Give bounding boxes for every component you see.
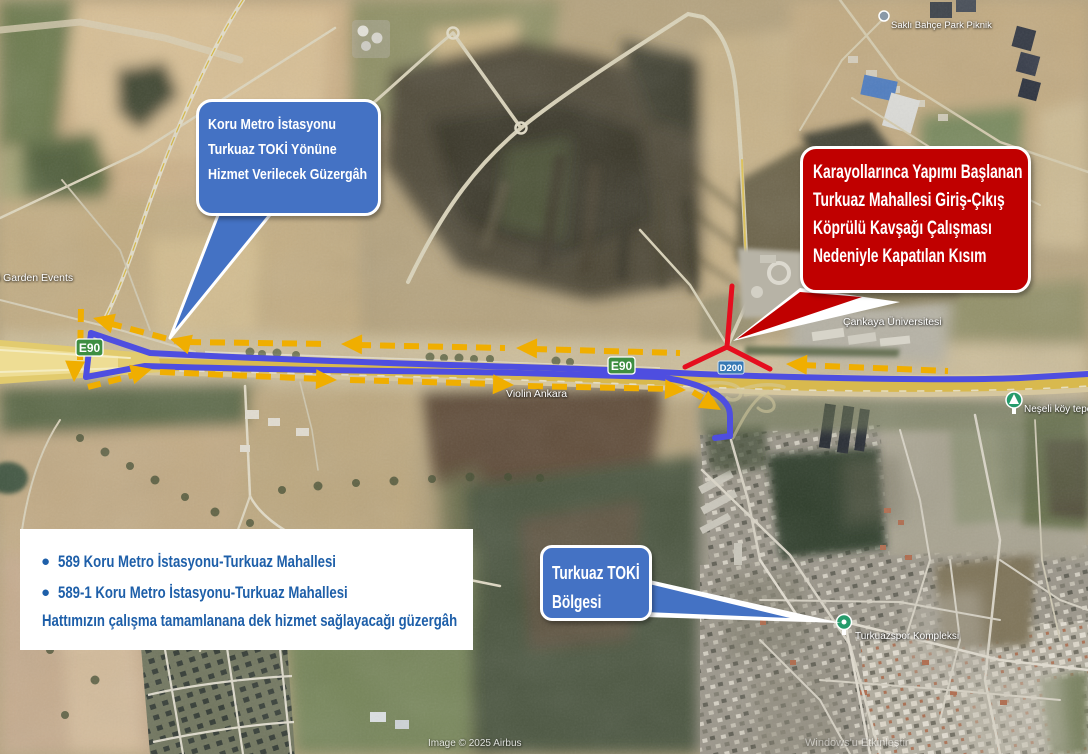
svg-text:E90: E90	[79, 341, 101, 355]
svg-text:E90: E90	[611, 359, 633, 373]
svg-text:D200: D200	[720, 363, 743, 374]
